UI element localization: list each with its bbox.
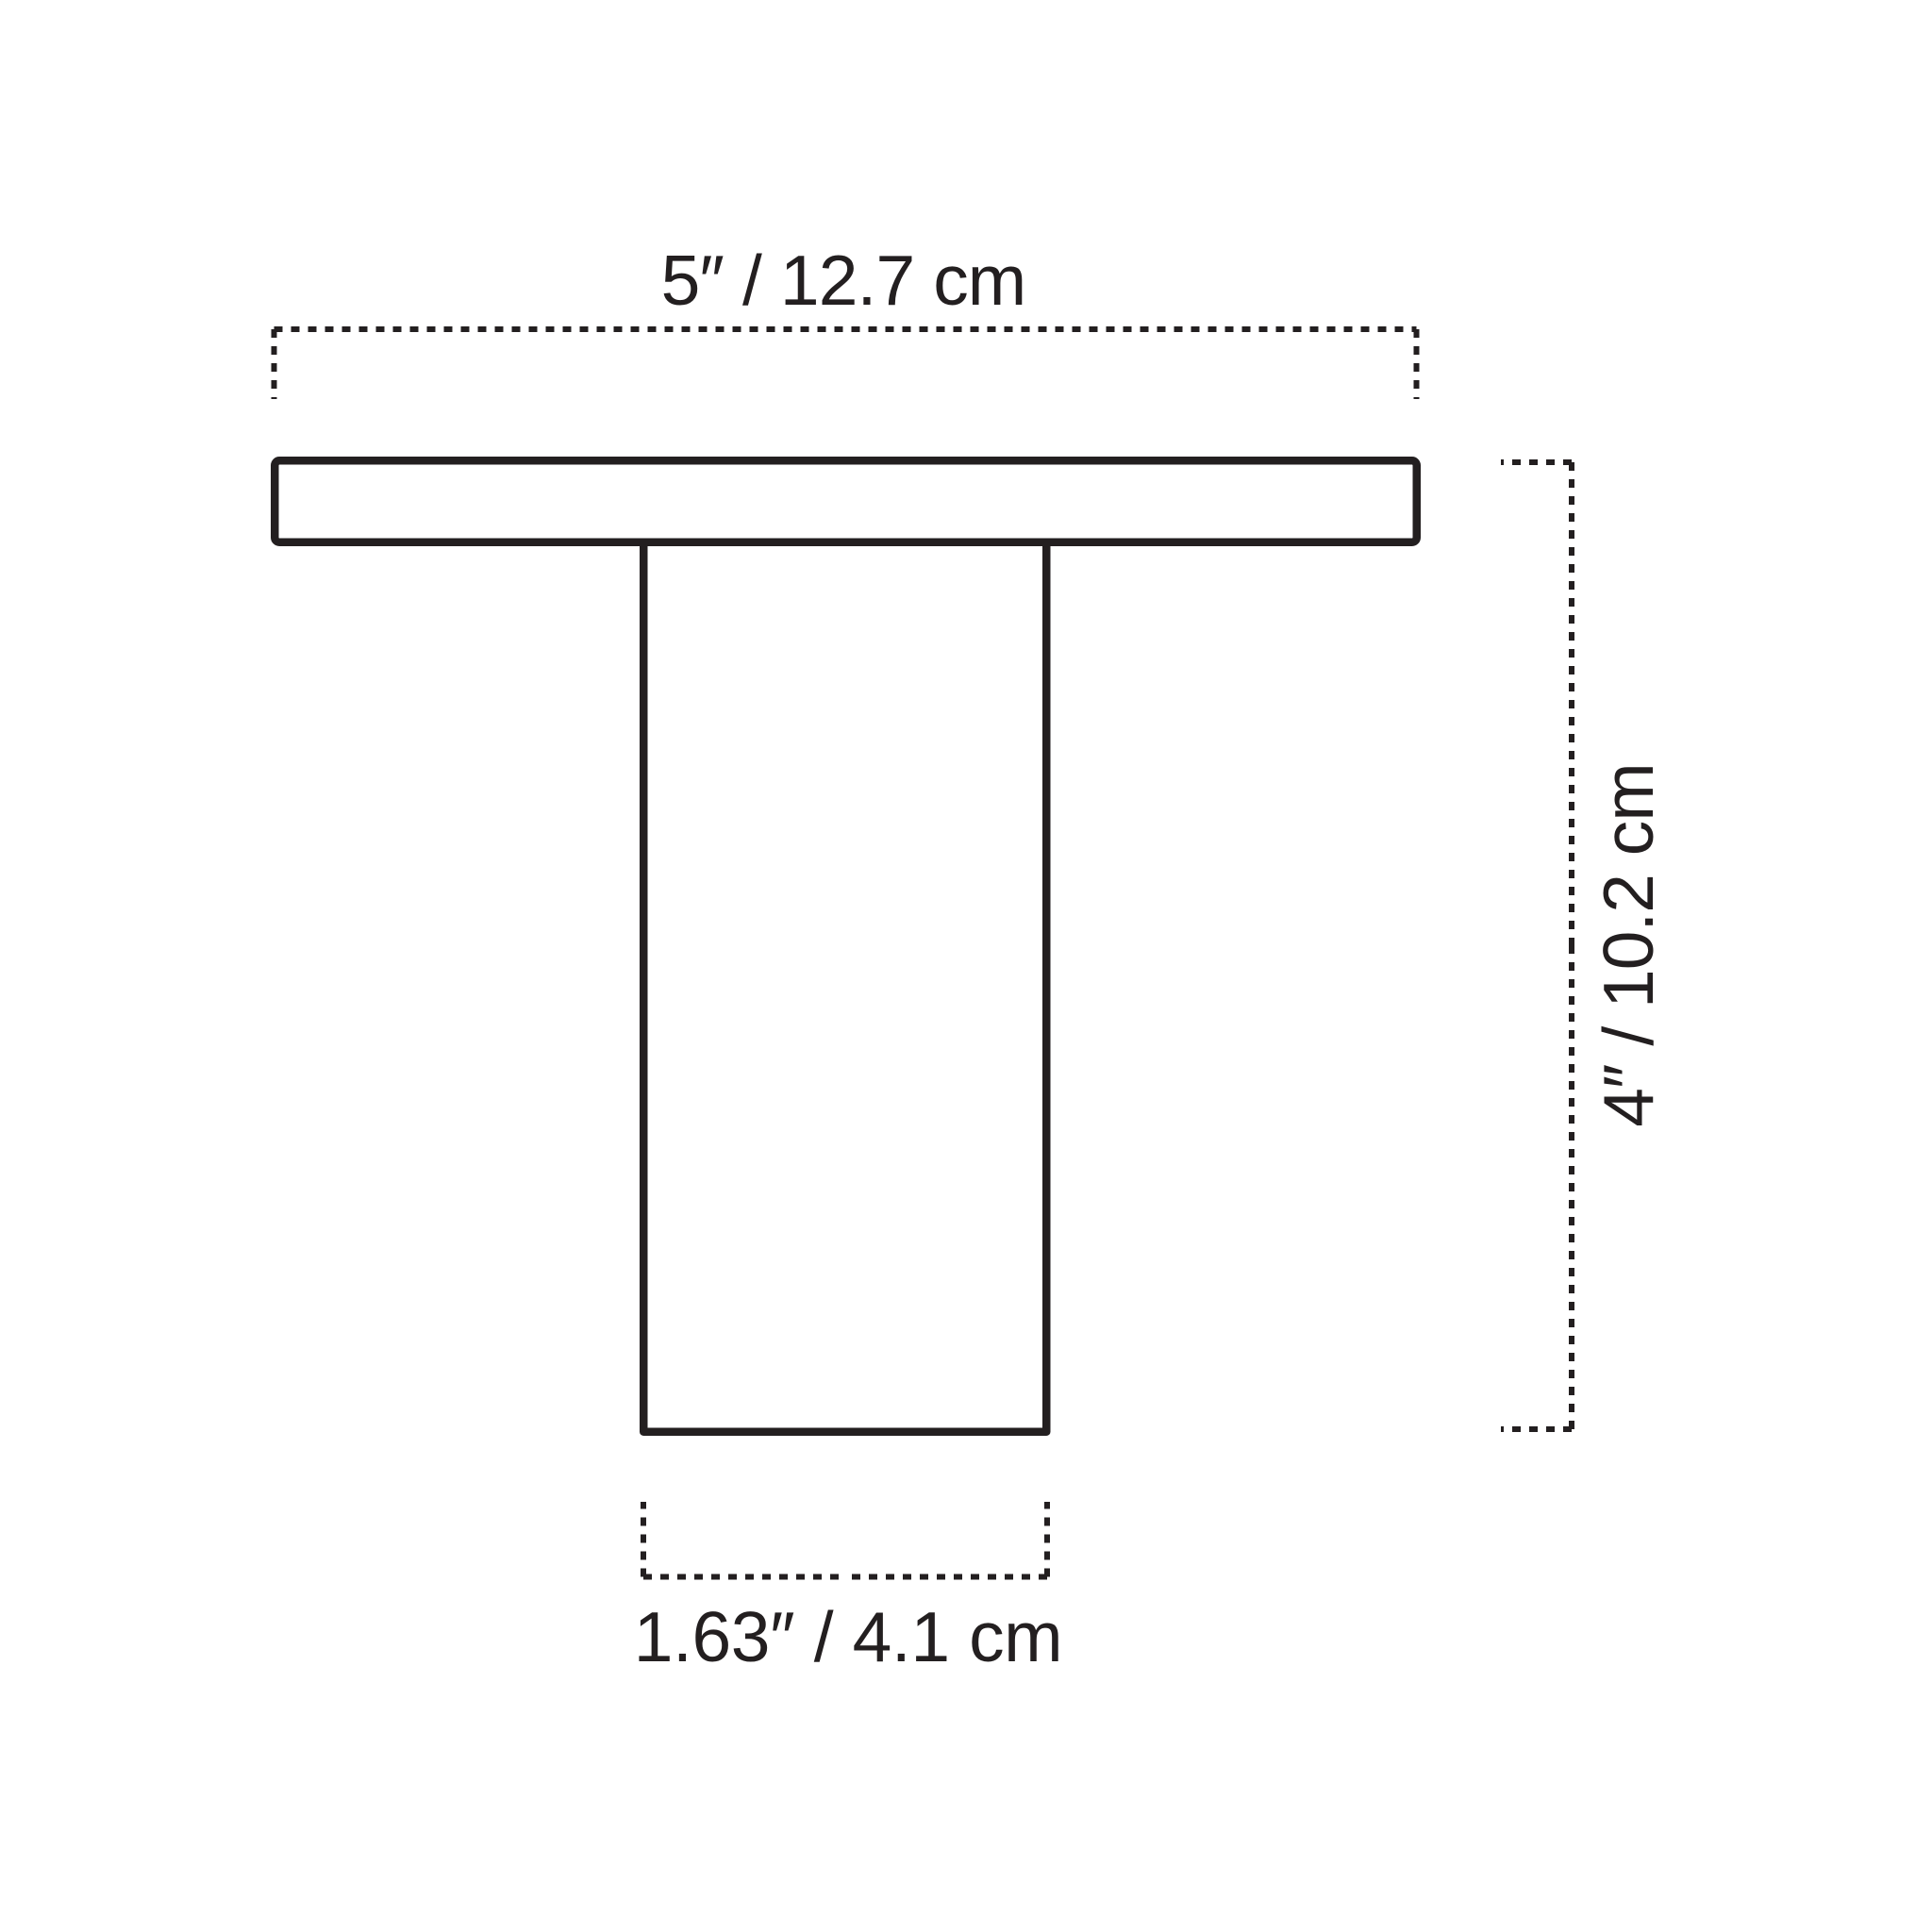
svg-text:5″ / 12.7 cm: 5″ / 12.7 cm (661, 241, 1026, 320)
svg-text:4″ / 10.2 cm: 4″ / 10.2 cm (1589, 763, 1668, 1127)
svg-text:1.63″ / 4.1 cm: 1.63″ / 4.1 cm (634, 1597, 1063, 1676)
